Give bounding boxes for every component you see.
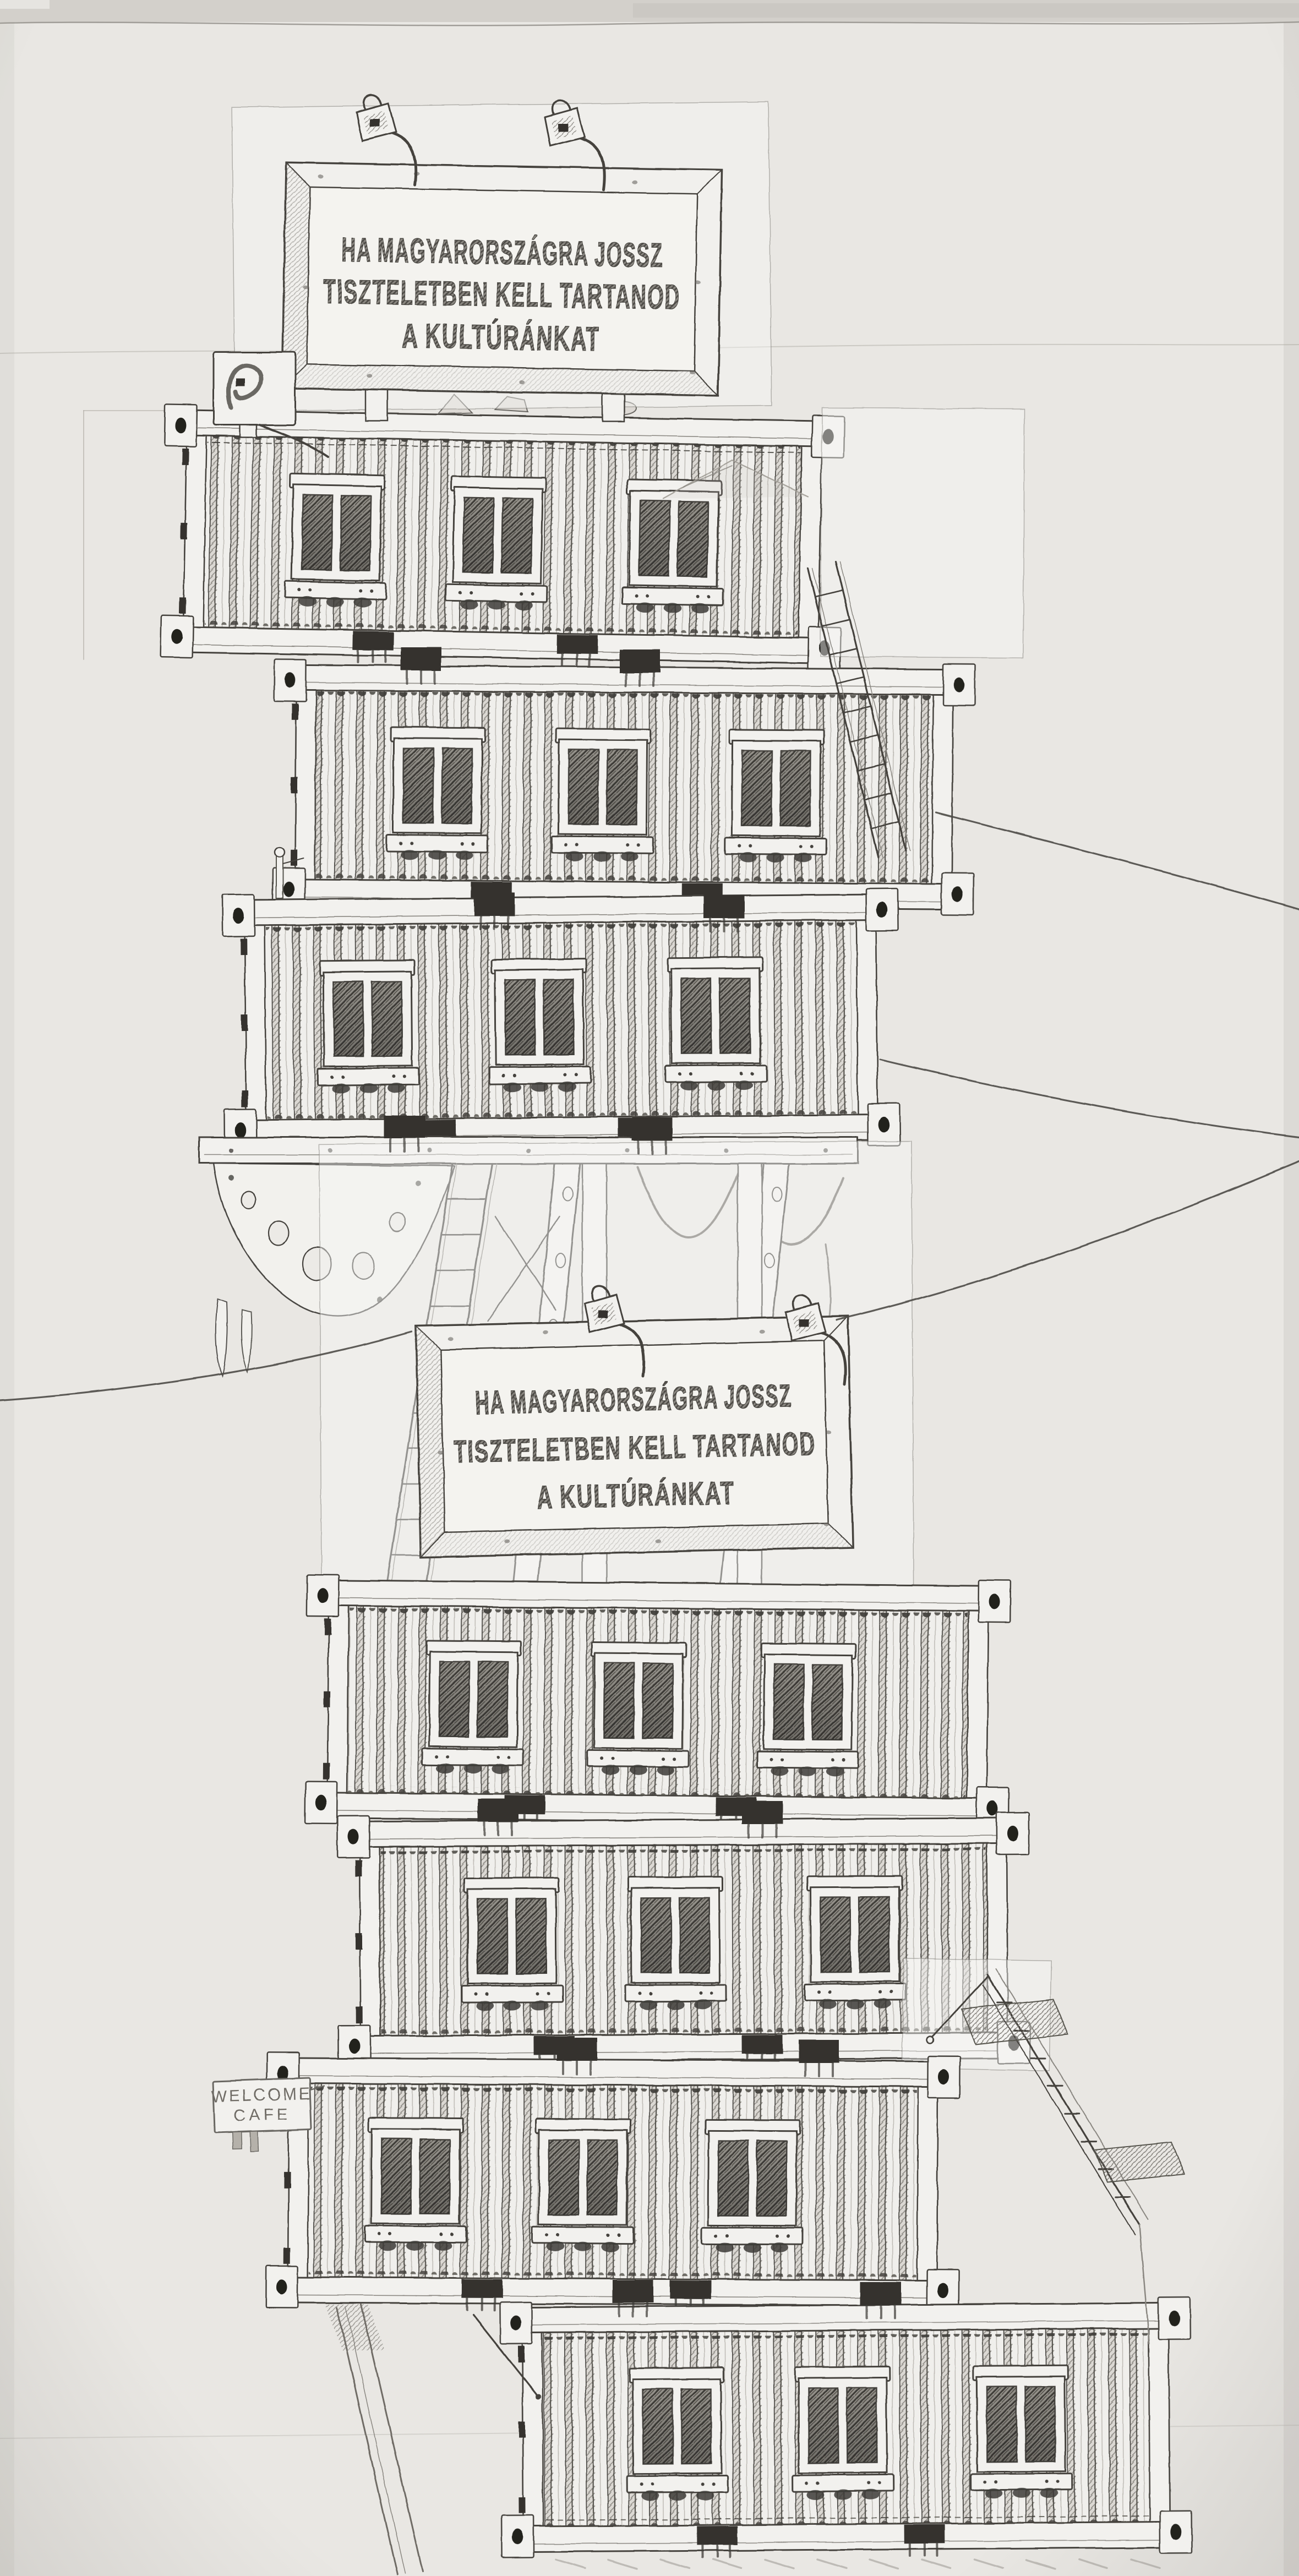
billboard-top: HA MAGYARORSZÁGRA JOSSZTISZTELETBEN KELL… bbox=[282, 162, 722, 396]
bottom-rail bbox=[511, 2522, 1182, 2552]
end-post bbox=[1149, 2327, 1170, 2523]
end-post bbox=[917, 2086, 938, 2282]
junction-connector bbox=[860, 2282, 901, 2305]
container-6 bbox=[266, 2053, 960, 2313]
junction-connector bbox=[401, 647, 441, 670]
bottom-rail bbox=[276, 2277, 949, 2306]
container-2 bbox=[272, 659, 975, 916]
billboard-middle: HA MAGYARORSZÁGRA JOSSZTISZTELETBEN KELL… bbox=[416, 1316, 853, 1557]
junction-connector bbox=[613, 2280, 653, 2303]
window bbox=[461, 1878, 563, 2011]
window bbox=[622, 479, 725, 614]
vent bbox=[904, 2525, 945, 2544]
container-4 bbox=[305, 1574, 1011, 1830]
window bbox=[626, 2368, 728, 2501]
junction-connector bbox=[799, 2040, 839, 2063]
billboard-line: HA MAGYARORSZÁGRA JOSSZ bbox=[341, 231, 664, 275]
window bbox=[386, 727, 489, 860]
end-post bbox=[967, 1610, 988, 1799]
junction-connector bbox=[742, 1801, 783, 1824]
sign-line: WELCOME bbox=[211, 2084, 312, 2106]
artwork: HA MAGYARORSZÁGRA JOSSZTISZTELETBEN KELL… bbox=[0, 0, 1299, 2576]
vent bbox=[670, 2280, 711, 2299]
window bbox=[285, 473, 388, 608]
billboard-line: HA MAGYARORSZÁGRA JOSSZ bbox=[474, 1378, 792, 1421]
window bbox=[624, 1877, 726, 2010]
overlay-sheet-ladder bbox=[820, 408, 1024, 658]
junction-connector bbox=[632, 1117, 673, 1140]
window bbox=[725, 729, 827, 863]
junction-connector bbox=[619, 650, 660, 673]
junction-connector bbox=[556, 2038, 597, 2061]
window bbox=[422, 1640, 525, 1774]
vent bbox=[556, 635, 598, 654]
window bbox=[488, 959, 591, 1093]
top-rail bbox=[347, 1818, 1019, 1847]
window bbox=[587, 1642, 690, 1776]
window bbox=[792, 2366, 894, 2499]
window bbox=[364, 2118, 466, 2251]
end-post bbox=[856, 919, 877, 1116]
container-1 bbox=[161, 404, 844, 670]
artwork-canvas: HA MAGYARORSZÁGRA JOSSZTISZTELETBEN KELL… bbox=[0, 0, 1299, 2576]
junction-connector bbox=[474, 893, 515, 916]
billboard-line: TISZTELETBEN KELL TARTANOD bbox=[323, 272, 680, 316]
stair-tread bbox=[1094, 2142, 1185, 2182]
vent bbox=[353, 631, 394, 650]
container-3 bbox=[222, 889, 900, 1153]
window bbox=[804, 1876, 905, 2009]
top-rail bbox=[277, 2058, 950, 2087]
junction-connector bbox=[703, 895, 744, 918]
top-rail bbox=[510, 2303, 1180, 2333]
top-edge-shading bbox=[0, 0, 1299, 25]
sign-line: CAFE bbox=[233, 2105, 291, 2125]
end-post bbox=[932, 694, 953, 885]
window bbox=[552, 728, 654, 861]
window bbox=[446, 476, 549, 610]
window bbox=[757, 1644, 859, 1777]
window bbox=[664, 957, 767, 1091]
window bbox=[970, 2365, 1072, 2498]
vent bbox=[697, 2526, 738, 2545]
junction-connector bbox=[478, 1799, 518, 1822]
window bbox=[532, 2119, 634, 2252]
container-7 bbox=[500, 2297, 1192, 2559]
vent bbox=[742, 2035, 783, 2054]
billboard-line: A KULTÚRÁNKAT bbox=[402, 317, 601, 358]
billboard-line: A KULTÚRÁNKAT bbox=[536, 1475, 735, 1515]
window bbox=[316, 960, 419, 1094]
junction-connector bbox=[384, 1115, 425, 1138]
end-post bbox=[359, 1846, 380, 2037]
vent bbox=[462, 2279, 503, 2298]
window bbox=[701, 2120, 803, 2253]
